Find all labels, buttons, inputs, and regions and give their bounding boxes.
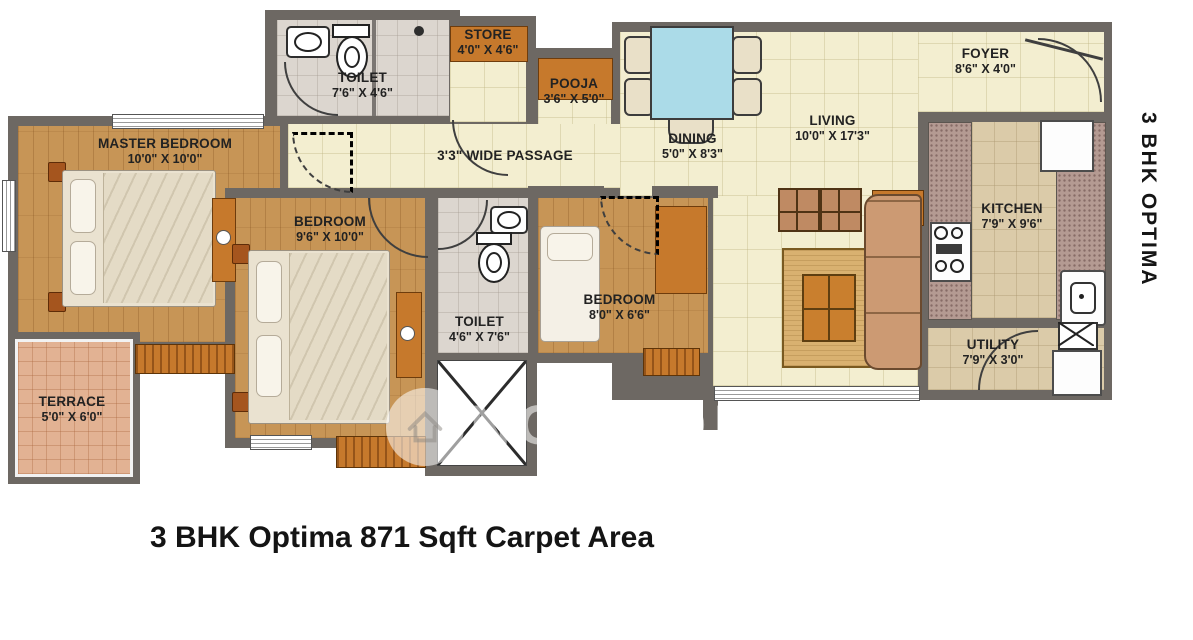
- duct-icon: [1058, 322, 1098, 350]
- master-bed: [62, 170, 216, 307]
- window-bedroom-mid-bottom: [250, 435, 312, 450]
- toilet-partition: [372, 20, 376, 116]
- kitchen-counter-left: [928, 122, 972, 320]
- dining-chair: [732, 78, 762, 116]
- fridge: [1040, 120, 1094, 172]
- rug-pattern: [802, 274, 856, 342]
- house-icon: [402, 404, 448, 450]
- window-master-top: [112, 114, 264, 129]
- wardrobe-bedroom-right-bottom: [643, 348, 700, 376]
- window-master-left: [2, 180, 16, 252]
- floor-plan-canvas: ® NOBROKER MASTER BEDROOM 10'0" X 10'0" …: [0, 0, 1193, 640]
- blanket: [103, 173, 213, 303]
- pillow: [70, 241, 96, 295]
- sofa: [864, 194, 922, 370]
- pillow: [70, 179, 96, 233]
- store-cabinet: [450, 26, 528, 62]
- sink-drain: [1079, 294, 1084, 299]
- pillow: [256, 335, 282, 397]
- pillow: [547, 233, 593, 261]
- pooja-cabinet: [538, 58, 613, 100]
- basin-bowl: [497, 211, 521, 229]
- watermark-text: NOBROKER: [470, 392, 853, 457]
- wc-bowl: [344, 46, 360, 68]
- blanket: [289, 253, 387, 420]
- washing-machine-icon: [1052, 350, 1102, 396]
- shower-icon: [414, 26, 424, 36]
- wc-icon: [336, 36, 368, 78]
- pillow: [256, 261, 282, 323]
- lamp-icon: [216, 230, 231, 245]
- terrace-floor: [18, 342, 130, 474]
- ottoman: [778, 188, 820, 232]
- nobroker-logo-icon: [386, 388, 464, 466]
- dining-table: [650, 26, 734, 120]
- duct-x-lines: [1058, 322, 1094, 346]
- washbasin-icon: [286, 26, 330, 58]
- wardrobe-bedroom-right: [655, 206, 707, 294]
- wc-icon: [478, 243, 510, 283]
- living-rug: [782, 248, 872, 368]
- plan-side-label: 3 BHK OPTIMA: [1136, 112, 1160, 342]
- washbasin-icon: [490, 206, 528, 234]
- bedroom-mid-bed: [248, 250, 390, 424]
- stove-burners-icon: [930, 222, 968, 278]
- dining-chair: [732, 36, 762, 74]
- wardrobe-master: [135, 344, 235, 374]
- wc-bowl: [486, 252, 502, 273]
- kitchen-sink-icon: [1060, 270, 1106, 326]
- wall-strip-bed3-top-left: [528, 186, 604, 198]
- bedroom-right-bed: [540, 226, 600, 342]
- wall-strip-bed3-top-right: [652, 186, 718, 198]
- lamp-icon: [400, 326, 415, 341]
- ottoman: [820, 188, 862, 232]
- stove-icon: [930, 222, 972, 282]
- plan-caption: 3 BHK Optima 871 Sqft Carpet Area: [150, 521, 654, 555]
- basin-bowl: [294, 32, 322, 52]
